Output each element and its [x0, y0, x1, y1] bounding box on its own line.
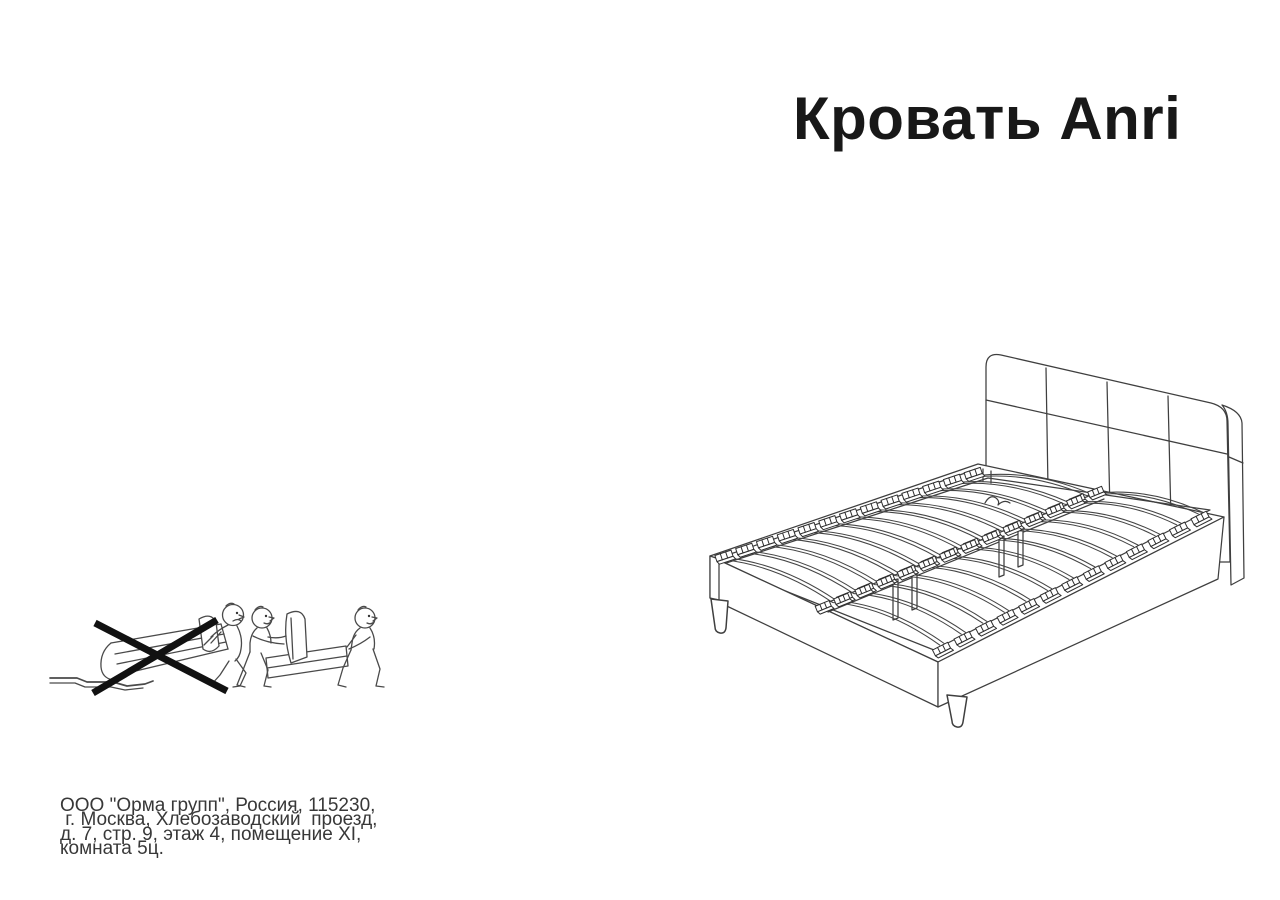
bed-leg: [711, 599, 728, 633]
carried-furniture: [266, 611, 348, 678]
do-not-drag-alone-icon: [50, 603, 246, 693]
bed-illustration: [670, 325, 1270, 775]
bed-leg: [947, 695, 967, 727]
carry-with-two-people-icon: [237, 606, 384, 687]
handling-warning-illustrations: [40, 586, 400, 716]
manufacturer-address: ООО "Орма групп", Россия, 115230, г. Мос…: [60, 799, 377, 857]
bed-frame: [710, 464, 1224, 707]
instruction-page: Кровать Anri: [0, 0, 1280, 900]
page-title: Кровать Anri: [793, 84, 1181, 153]
